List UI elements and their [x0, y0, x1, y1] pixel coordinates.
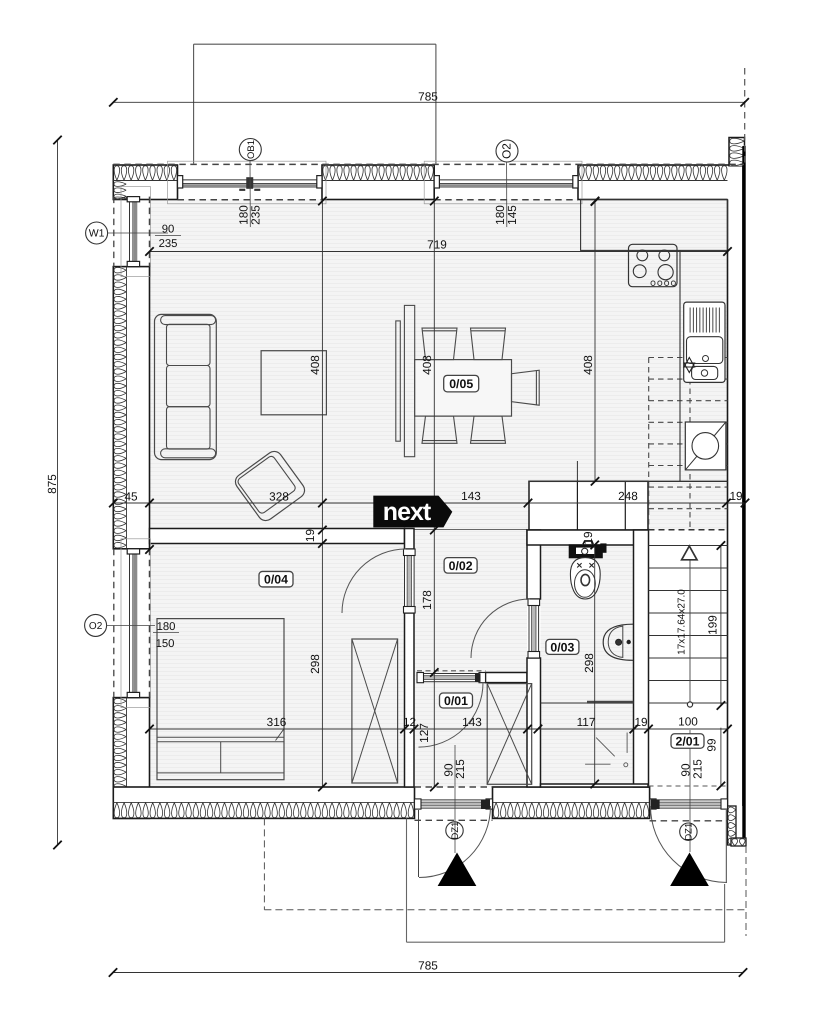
svg-text:235: 235: [159, 238, 178, 250]
svg-text:0/01: 0/01: [444, 694, 468, 708]
svg-text:O2: O2: [89, 621, 103, 632]
svg-text:127: 127: [417, 723, 431, 743]
svg-text:785: 785: [418, 959, 438, 973]
svg-text:875: 875: [45, 474, 59, 494]
svg-text:100: 100: [678, 715, 698, 729]
svg-text:0/03: 0/03: [550, 640, 574, 654]
svg-text:117: 117: [577, 715, 596, 729]
svg-text:17x17.64x27.0: 17x17.64x27.0: [677, 589, 688, 655]
svg-text:298: 298: [308, 654, 322, 674]
svg-text:248: 248: [618, 489, 638, 503]
svg-text:19: 19: [729, 489, 742, 503]
svg-text:298: 298: [582, 653, 596, 673]
svg-text:145: 145: [505, 205, 519, 225]
svg-text:150: 150: [156, 638, 175, 650]
svg-text:O2: O2: [500, 143, 514, 159]
svg-text:45: 45: [124, 490, 138, 504]
svg-text:19: 19: [303, 529, 317, 542]
svg-text:0/05: 0/05: [449, 377, 473, 391]
svg-text:215: 215: [453, 759, 467, 779]
svg-text:328: 328: [269, 490, 289, 504]
svg-text:719: 719: [427, 238, 447, 252]
svg-text:12: 12: [403, 715, 416, 729]
svg-text:143: 143: [462, 715, 482, 729]
svg-text:W1: W1: [89, 228, 105, 240]
svg-text:OB1: OB1: [246, 140, 257, 159]
svg-text:408: 408: [308, 355, 322, 375]
svg-text:215: 215: [691, 759, 705, 779]
svg-text:408: 408: [581, 355, 595, 375]
svg-text:408: 408: [420, 355, 434, 375]
svg-text:90: 90: [162, 224, 175, 236]
svg-text:199: 199: [706, 615, 720, 635]
svg-text:143: 143: [461, 489, 481, 503]
svg-text:DZ1: DZ1: [684, 823, 695, 841]
svg-text:2/01: 2/01: [676, 734, 700, 748]
svg-text:0/04: 0/04: [264, 573, 288, 587]
svg-text:19: 19: [581, 531, 595, 544]
svg-text:180: 180: [157, 621, 176, 633]
svg-text:785: 785: [418, 89, 438, 103]
svg-text:99: 99: [705, 738, 719, 751]
svg-text:235: 235: [248, 205, 262, 225]
svg-text:0/02: 0/02: [449, 559, 473, 573]
svg-text:178: 178: [420, 590, 434, 610]
svg-text:19: 19: [634, 715, 647, 729]
svg-text:316: 316: [267, 715, 287, 729]
svg-text:next: next: [383, 498, 432, 526]
svg-text:DZ1: DZ1: [450, 822, 461, 840]
